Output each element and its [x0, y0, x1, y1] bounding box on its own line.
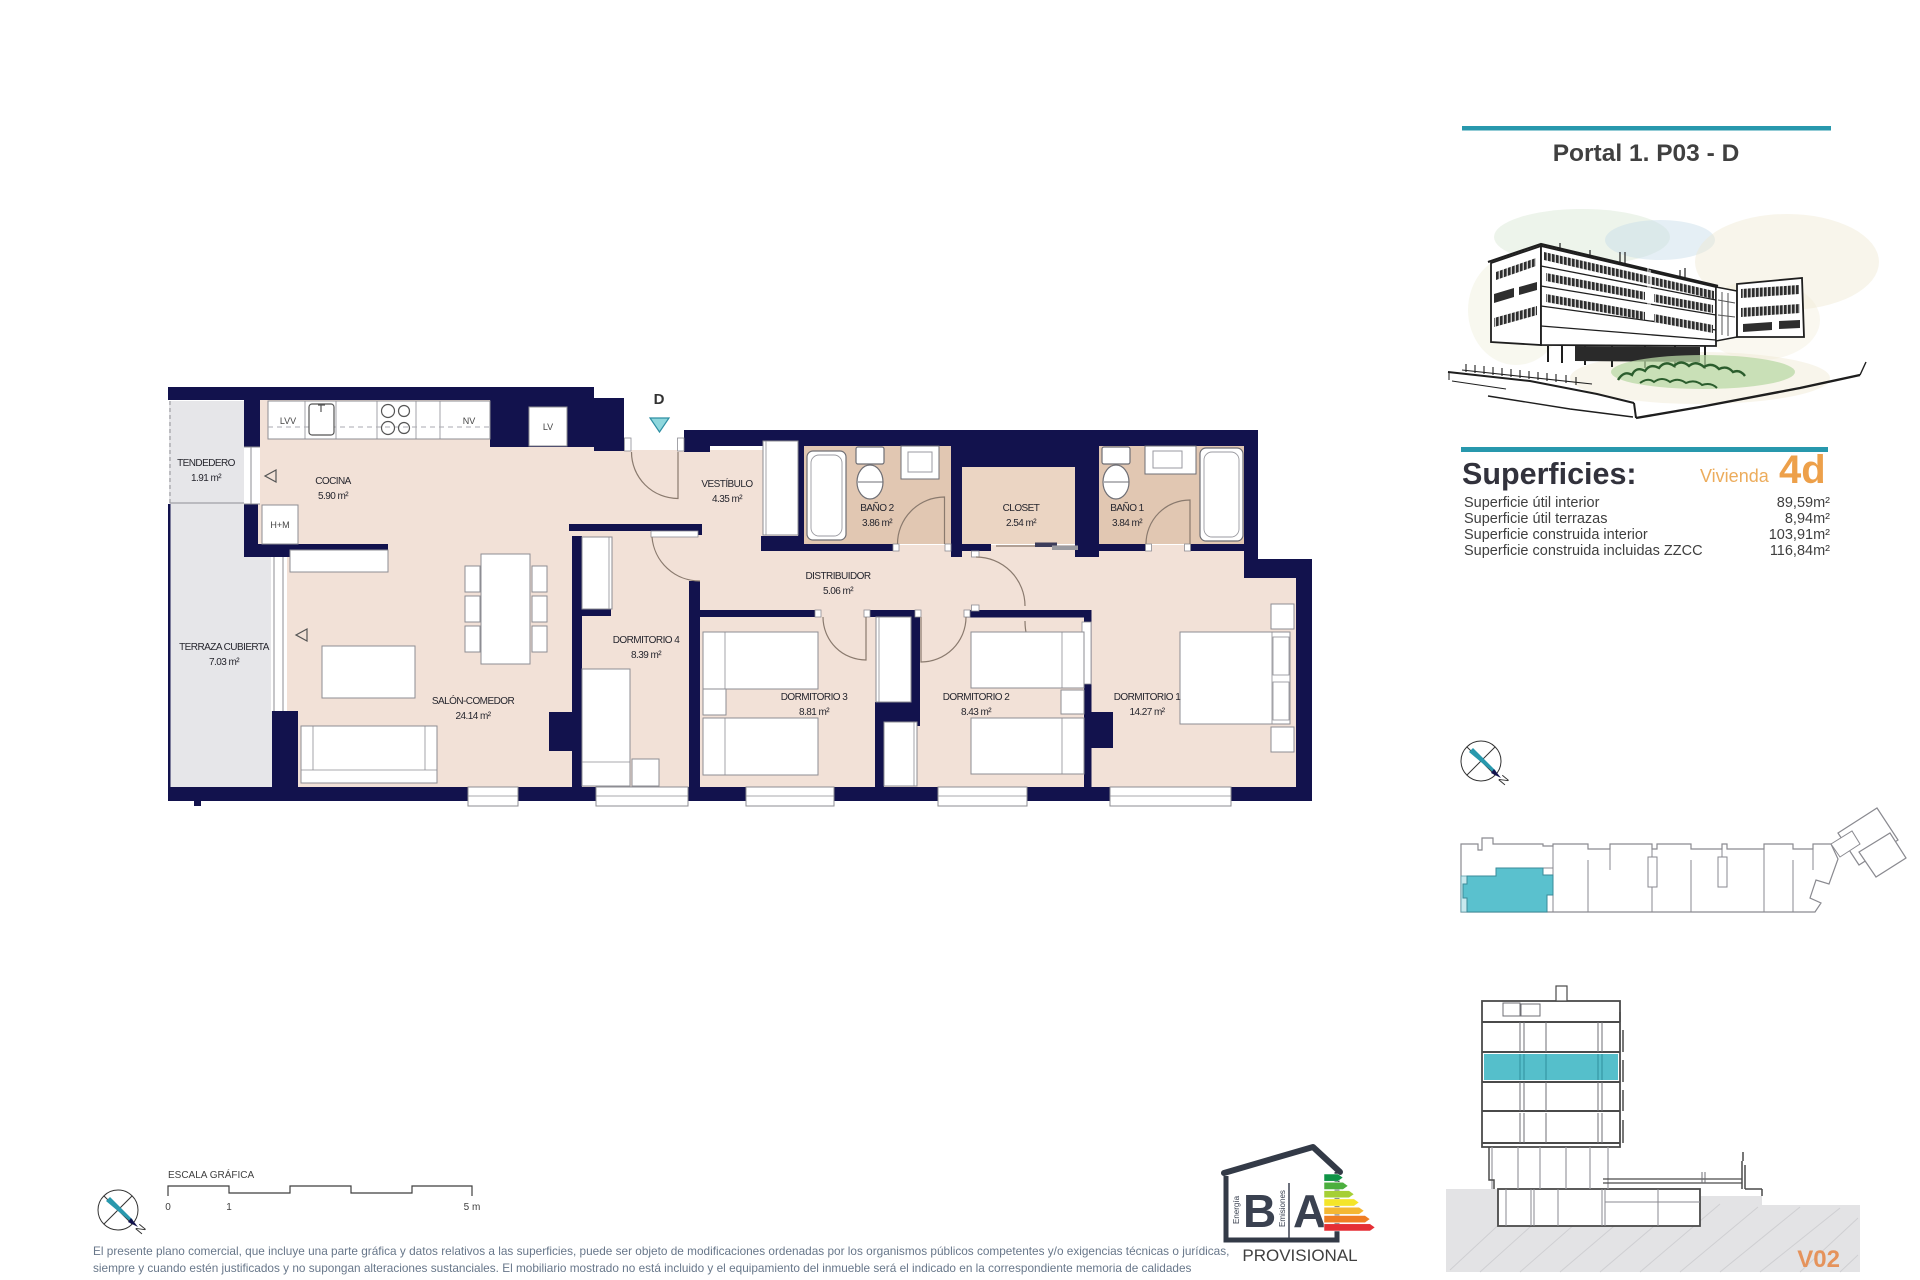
svg-text:DISTRIBUIDOR: DISTRIBUIDOR [805, 571, 870, 582]
svg-text:7.03 m²: 7.03 m² [209, 657, 240, 668]
svg-text:NV: NV [463, 416, 476, 426]
svg-text:24.14 m²: 24.14 m² [455, 711, 491, 722]
svg-text:5 m: 5 m [464, 1202, 481, 1213]
svg-text:Emisiones: Emisiones [1278, 1190, 1287, 1227]
svg-text:4.35 m²: 4.35 m² [712, 494, 743, 505]
svg-text:TERRAZA CUBIERTA: TERRAZA CUBIERTA [179, 642, 270, 653]
svg-text:ESCALA GRÁFICA: ESCALA GRÁFICA [168, 1168, 254, 1181]
svg-text:N: N [133, 1221, 149, 1237]
svg-text:El presente plano comercial, q: El presente plano comercial, que incluye… [93, 1244, 1229, 1258]
svg-text:LVV: LVV [280, 416, 296, 426]
svg-text:1: 1 [226, 1202, 232, 1213]
svg-text:DORMITORIO 4: DORMITORIO 4 [613, 635, 681, 646]
svg-text:8.39 m²: 8.39 m² [631, 650, 662, 661]
svg-text:3.84 m²: 3.84 m² [1112, 518, 1143, 529]
svg-text:Superficies:: Superficies: [1462, 457, 1637, 491]
svg-text:B: B [1243, 1185, 1276, 1237]
svg-text:DORMITORIO 2: DORMITORIO 2 [943, 692, 1011, 703]
svg-text:TENDEDERO: TENDEDERO [177, 458, 236, 469]
svg-text:LV: LV [543, 422, 553, 432]
svg-text:PROVISIONAL: PROVISIONAL [1242, 1246, 1357, 1265]
svg-text:siempre y cuando estén justifi: siempre y cuando estén justificados y no… [93, 1261, 1192, 1275]
svg-text:CLOSET: CLOSET [1003, 503, 1040, 514]
svg-text:5.90 m²: 5.90 m² [318, 491, 349, 502]
svg-text:Superficie útil terrazas: Superficie útil terrazas [1464, 511, 1607, 527]
svg-text:1.91 m²: 1.91 m² [191, 473, 222, 484]
svg-text:3.86 m²: 3.86 m² [862, 518, 893, 529]
svg-text:DORMITORIO 3: DORMITORIO 3 [781, 692, 849, 703]
svg-text:DORMITORIO 1: DORMITORIO 1 [1114, 692, 1182, 703]
svg-text:8,94m²: 8,94m² [1785, 511, 1830, 527]
svg-text:BAÑO 2: BAÑO 2 [860, 501, 894, 514]
svg-text:N: N [1496, 772, 1512, 788]
svg-text:5.06 m²: 5.06 m² [823, 586, 854, 597]
svg-text:SALÓN-COMEDOR: SALÓN-COMEDOR [432, 694, 515, 707]
svg-text:Portal 1. P03 - D: Portal 1. P03 - D [1553, 140, 1740, 167]
svg-text:89,59m²: 89,59m² [1777, 495, 1830, 511]
svg-text:8.43 m²: 8.43 m² [961, 707, 992, 718]
svg-text:103,91m²: 103,91m² [1769, 527, 1830, 543]
svg-text:116,84m²: 116,84m² [1770, 543, 1830, 559]
svg-text:Vivienda: Vivienda [1700, 466, 1770, 486]
svg-text:BAÑO 1: BAÑO 1 [1110, 501, 1144, 514]
svg-text:4d: 4d [1779, 448, 1826, 492]
svg-text:8.81 m²: 8.81 m² [799, 707, 830, 718]
svg-text:2.54 m²: 2.54 m² [1006, 518, 1037, 529]
svg-text:V02: V02 [1797, 1246, 1840, 1273]
svg-text:H+M: H+M [270, 520, 289, 530]
svg-text:14.27 m²: 14.27 m² [1129, 707, 1165, 718]
svg-text:0: 0 [165, 1202, 171, 1213]
svg-text:A: A [1293, 1185, 1326, 1237]
svg-text:Energía: Energía [1232, 1195, 1241, 1224]
svg-text:VESTÍBULO: VESTÍBULO [701, 477, 753, 490]
svg-text:Superficie construida incluida: Superficie construida incluidas ZZCC [1464, 543, 1703, 559]
svg-text:Superficie construida interior: Superficie construida interior [1464, 527, 1648, 543]
svg-text:COCINA: COCINA [315, 476, 351, 487]
svg-text:D: D [654, 391, 665, 408]
svg-text:Superficie útil interior: Superficie útil interior [1464, 495, 1600, 511]
